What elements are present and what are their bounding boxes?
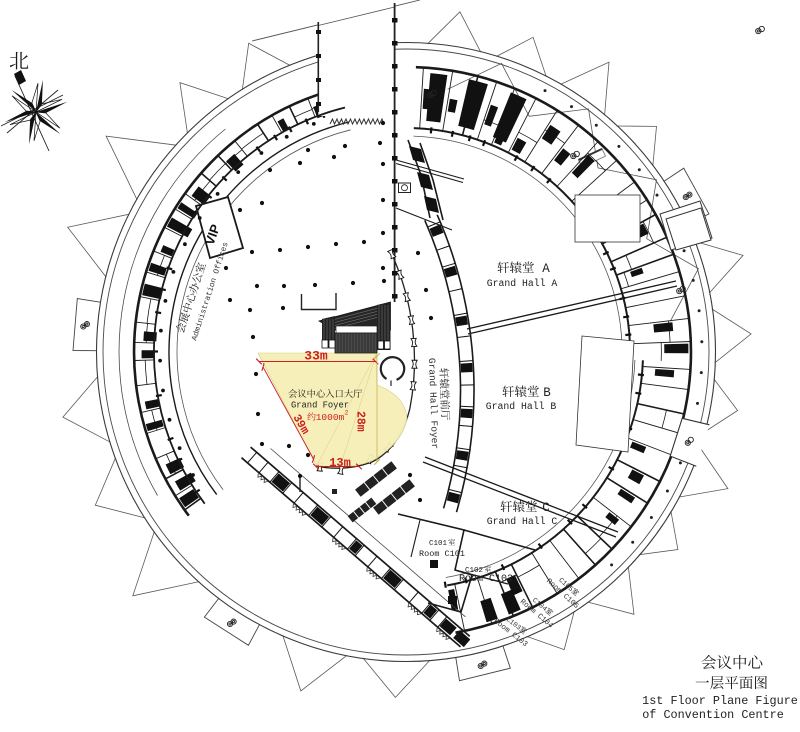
svg-text:1000m: 1000m: [316, 412, 345, 423]
svg-text:Room C102: Room C102: [459, 574, 513, 585]
svg-text:Grand Foyer: Grand Foyer: [291, 401, 349, 411]
svg-text:of Convention Centre: of Convention Centre: [642, 708, 784, 722]
svg-text:Room C101: Room C101: [419, 549, 465, 559]
svg-text:1st Floor Plane Figure: 1st Floor Plane Figure: [642, 694, 798, 708]
svg-text:B: B: [543, 386, 551, 400]
svg-text:A: A: [542, 262, 550, 276]
svg-text:C: C: [542, 501, 550, 515]
svg-text:2: 2: [345, 410, 349, 417]
svg-text:33m: 33m: [304, 349, 328, 364]
svg-text:Grand Hall A: Grand Hall A: [487, 278, 558, 289]
svg-text:Grand Hall B: Grand Hall B: [486, 401, 557, 412]
svg-text:C101: C101: [429, 540, 448, 548]
svg-text:13m: 13m: [329, 456, 351, 470]
svg-text:Grand Hall C: Grand Hall C: [487, 516, 558, 527]
svg-text:28m: 28m: [354, 411, 367, 432]
